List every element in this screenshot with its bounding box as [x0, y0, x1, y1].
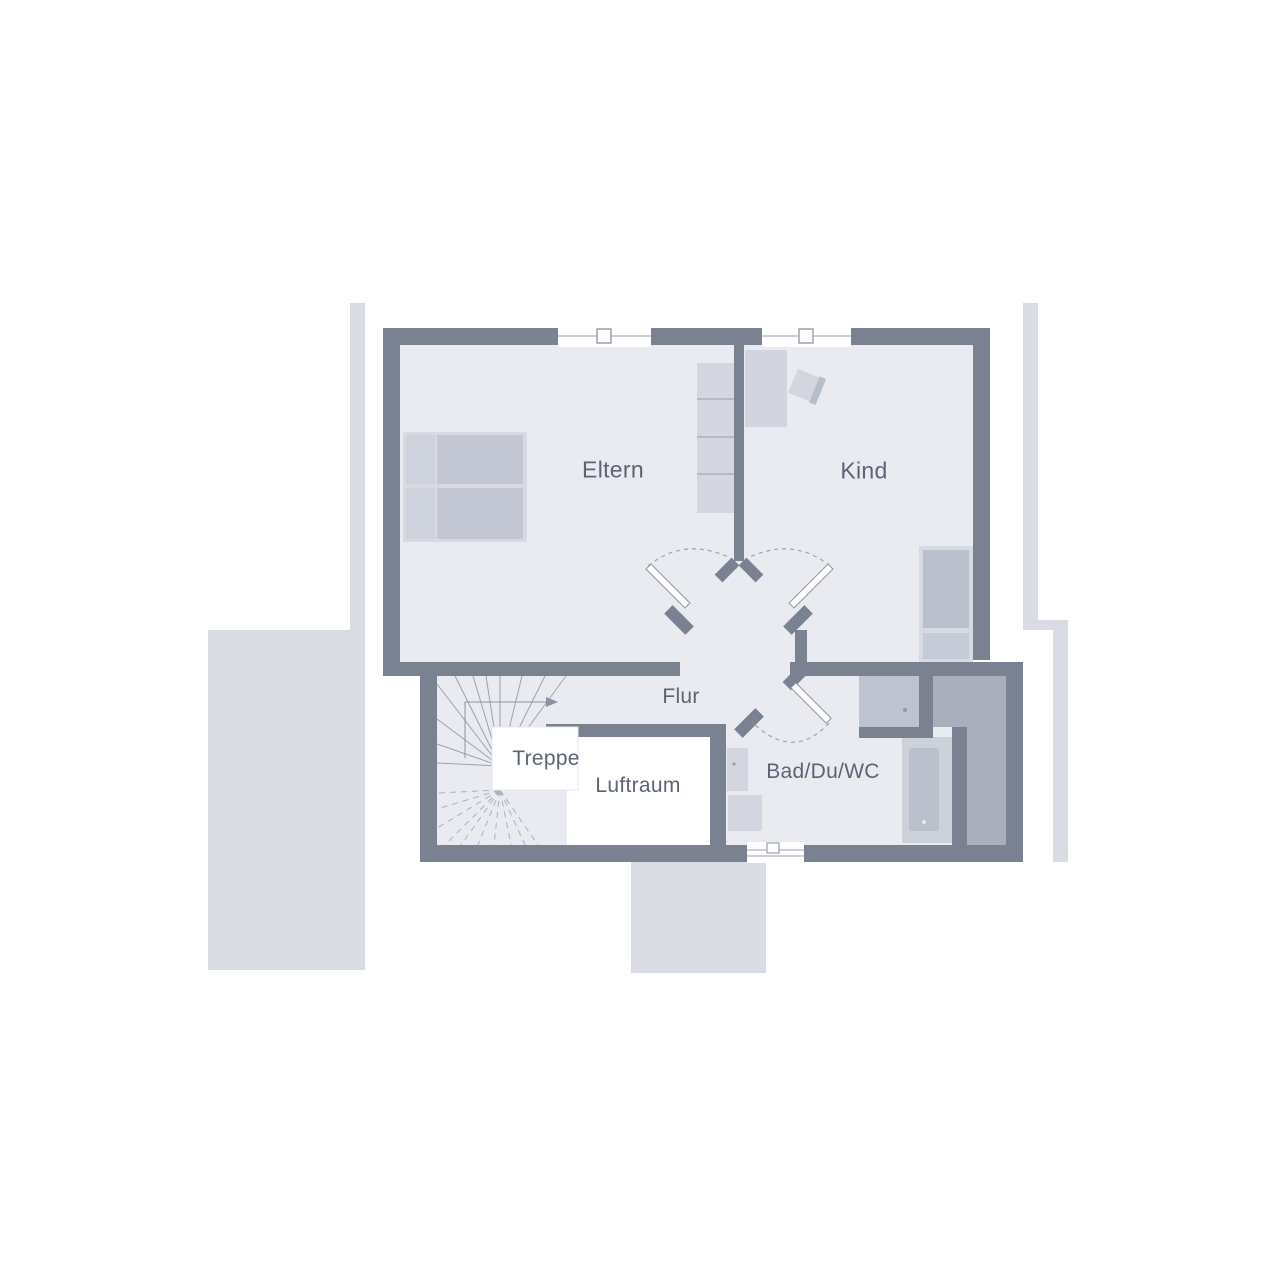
- bed-mattress: [437, 435, 523, 484]
- right-roof-strip-lower: [1053, 620, 1068, 862]
- window-eltern: [558, 326, 651, 347]
- wall-bottom: [420, 845, 1023, 862]
- room-label-bad: Bad/Du/WC: [766, 760, 880, 784]
- toilet: [728, 795, 762, 831]
- wall-top: [383, 328, 990, 345]
- bottom-terrace-block: [631, 862, 766, 973]
- window-kind: [762, 326, 851, 347]
- wall-shower-right: [919, 662, 933, 738]
- bed-pillow: [406, 435, 435, 484]
- bed-foot-section: [923, 633, 969, 659]
- bed-mattress: [437, 488, 523, 539]
- wall-bad-storage: [952, 727, 967, 845]
- bed-pillow: [406, 488, 435, 539]
- washbasin-body: [727, 748, 748, 791]
- wall-right-upper: [973, 328, 990, 660]
- desk: [745, 350, 787, 427]
- bathtub-basin: [909, 748, 939, 831]
- left-roof-strip: [350, 303, 365, 630]
- room-label-eltern: Eltern: [582, 457, 644, 484]
- right-roof-strip-upper: [1023, 303, 1038, 630]
- wardrobe: [697, 363, 734, 513]
- shower-drain: [903, 708, 907, 712]
- window-bad: [747, 842, 804, 863]
- floor-plan-page: Eltern Kind Flur Treppe Luftraum Bad/Du/…: [0, 0, 1280, 1280]
- left-terrace-block: [208, 630, 365, 970]
- wall-left-upper: [383, 328, 400, 676]
- bed-mattress: [923, 550, 969, 628]
- washbasin-tap: [733, 763, 736, 766]
- shower: [859, 676, 919, 727]
- wall-door-stub: [795, 630, 807, 664]
- single-bed: [919, 546, 973, 664]
- wall-eltern-kind-divider: [734, 345, 744, 561]
- room-label-treppe: Treppe: [512, 747, 580, 771]
- room-label-luftraum: Luftraum: [595, 774, 680, 798]
- wall-kind-bottom: [790, 662, 1023, 676]
- bathtub: [902, 737, 953, 843]
- floor-plan-drawing: [0, 0, 1280, 1280]
- washbasin: [727, 748, 748, 791]
- room-label-kind: Kind: [840, 458, 887, 485]
- room-label-flur: Flur: [662, 685, 699, 709]
- double-bed: [403, 432, 527, 542]
- wall-luftraum-bad: [710, 724, 726, 845]
- shower-tray: [859, 676, 919, 727]
- bathtub-drain: [922, 820, 926, 824]
- wall-left-lower: [420, 662, 437, 862]
- wall-right-lower: [1006, 662, 1023, 862]
